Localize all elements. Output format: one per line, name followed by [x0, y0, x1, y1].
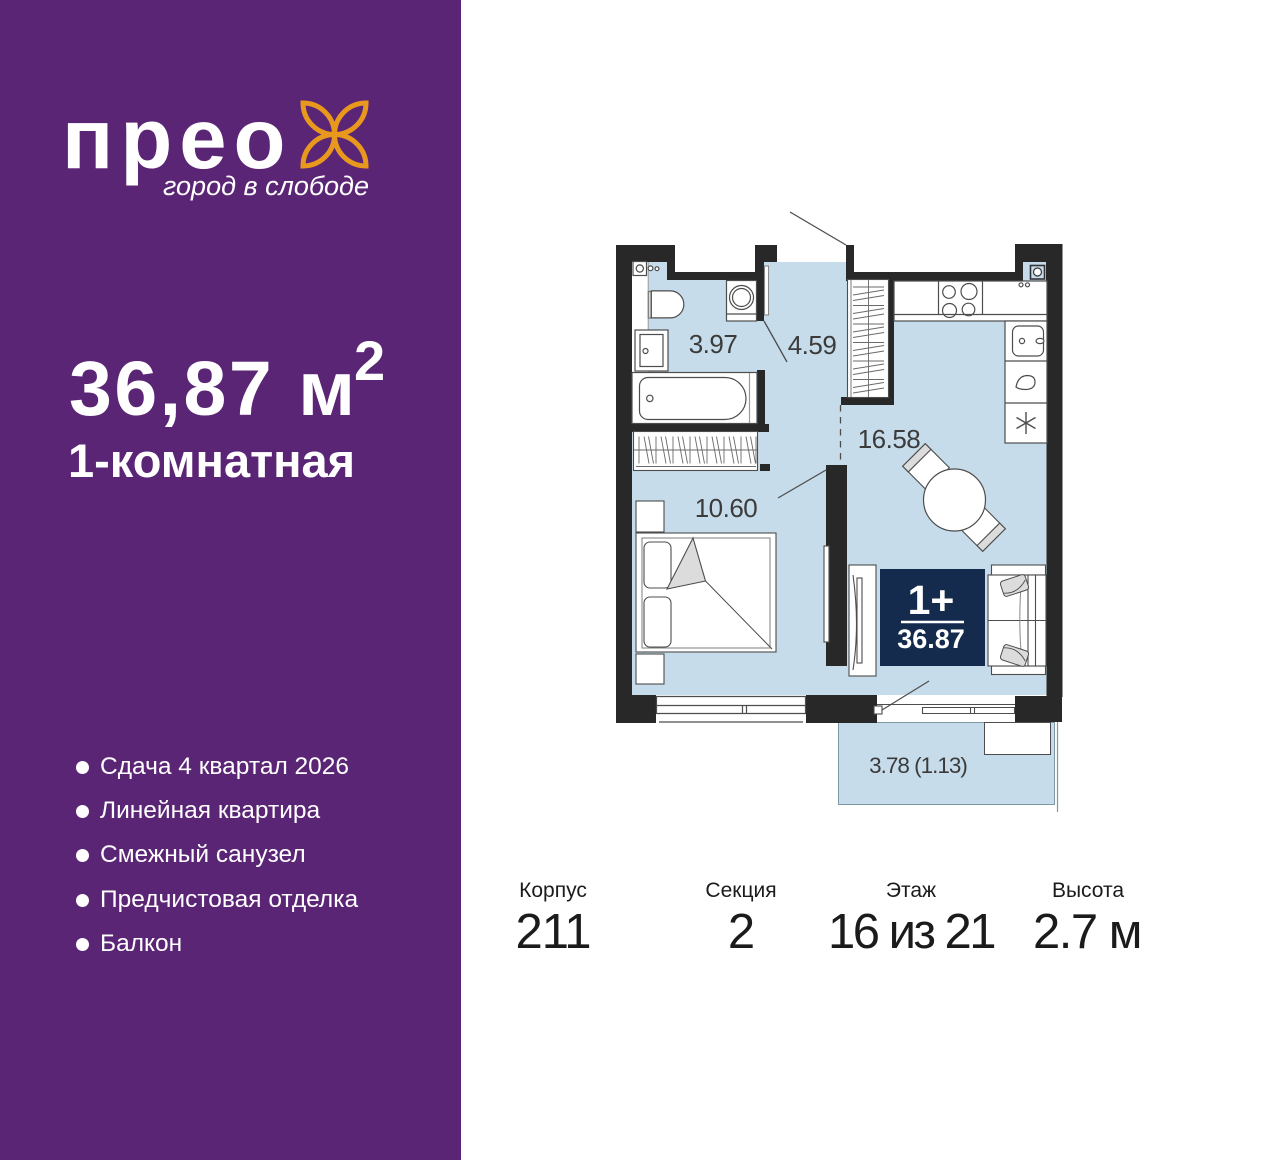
- svg-text:10.60: 10.60: [695, 493, 758, 523]
- svg-text:3.97: 3.97: [689, 329, 738, 359]
- svg-text:1+: 1+: [908, 577, 955, 623]
- svg-text:3.78 (1.13): 3.78 (1.13): [869, 753, 967, 778]
- svg-text:16.58: 16.58: [858, 424, 921, 454]
- svg-text:36.87: 36.87: [897, 624, 965, 654]
- svg-text:4.59: 4.59: [788, 330, 837, 360]
